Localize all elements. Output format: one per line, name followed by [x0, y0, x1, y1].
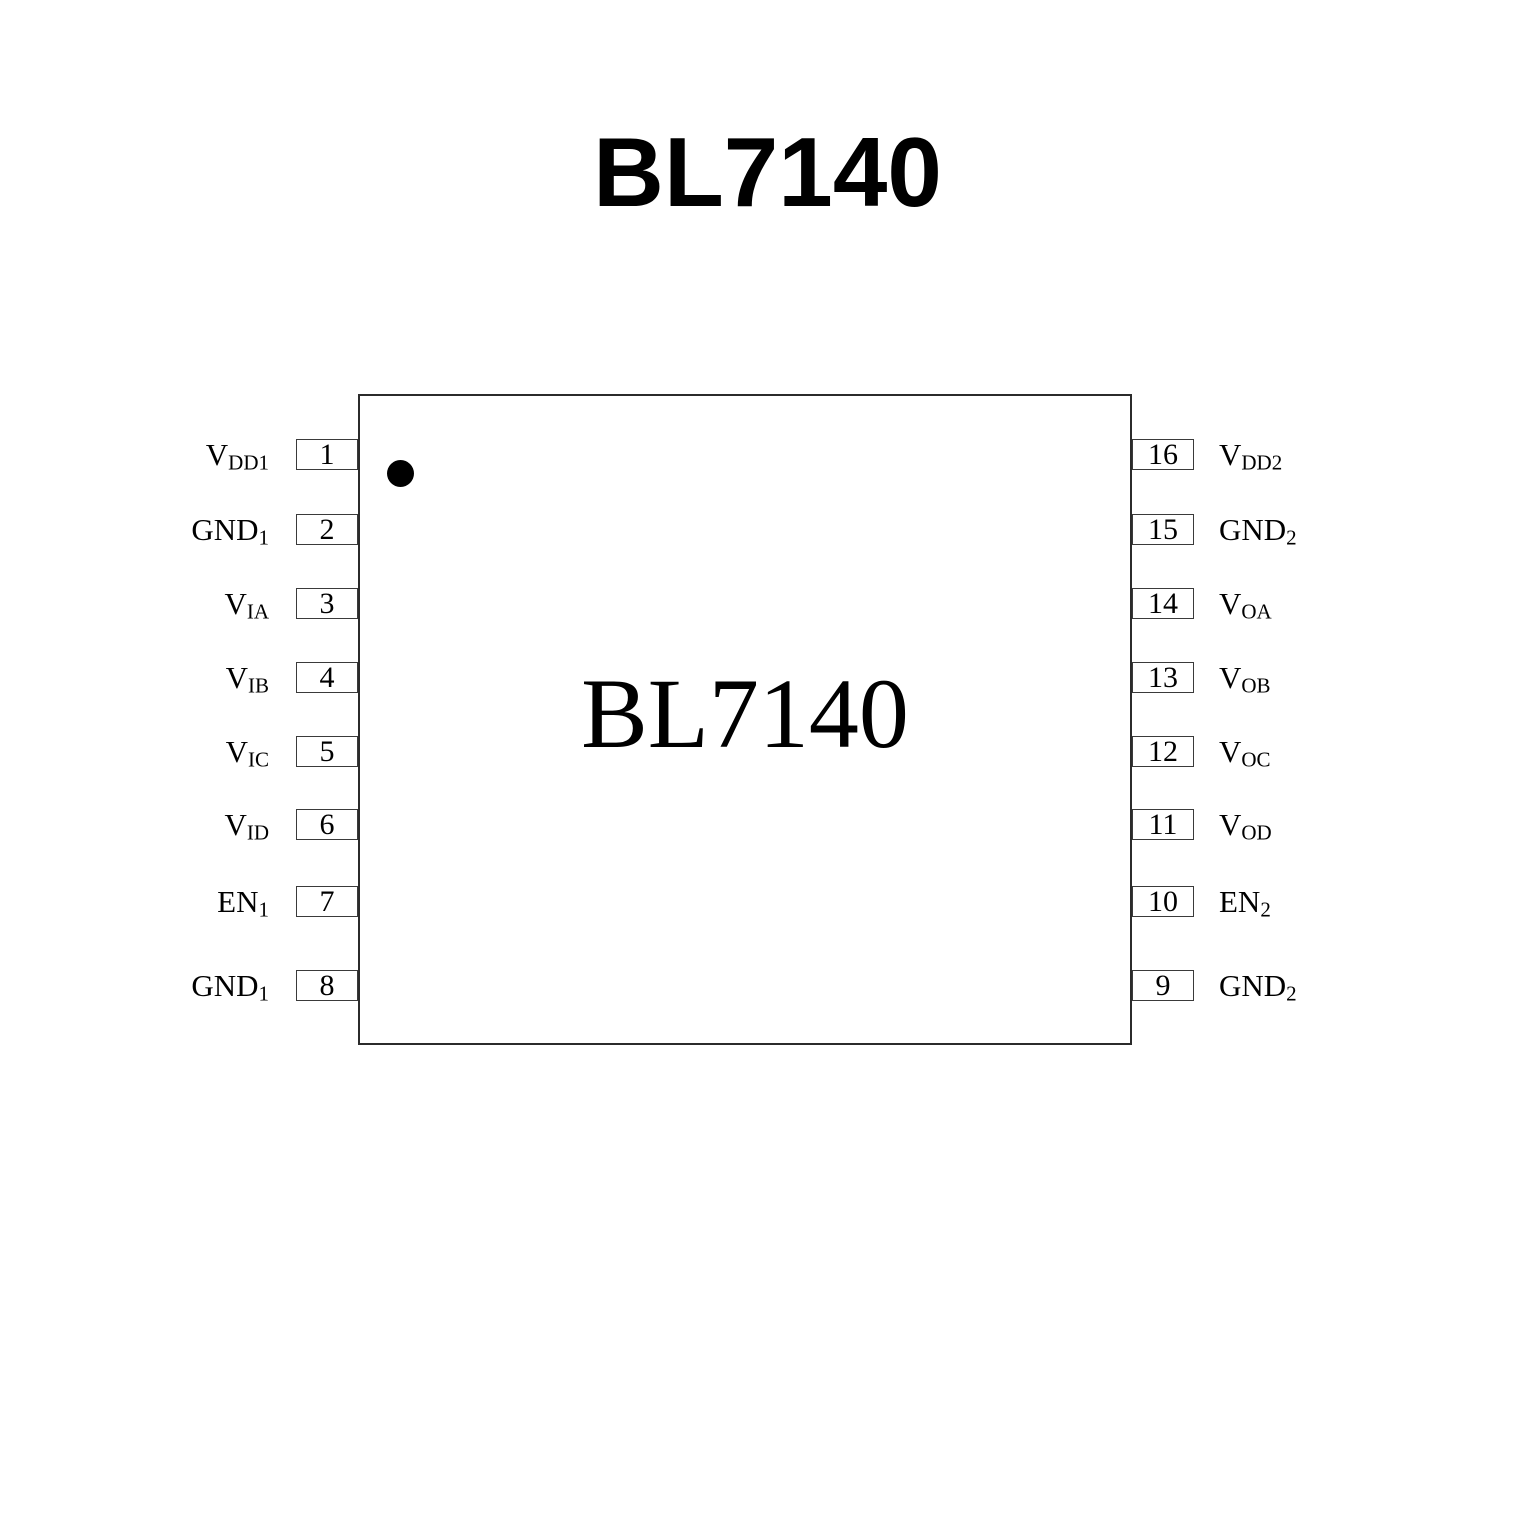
pin-label-voc: VOC — [1194, 736, 1472, 767]
pin-name-subscript: 1 — [259, 526, 270, 550]
pin-number: 7 — [320, 888, 335, 916]
pin-name: V — [1219, 437, 1241, 472]
pin-name-subscript: 2 — [1286, 526, 1297, 550]
pin-name: GND — [1219, 512, 1286, 547]
pin-row-15: 15 GND2 — [1132, 514, 1472, 545]
pin-label-en2: EN2 — [1194, 886, 1472, 917]
pin-name: V — [1219, 734, 1241, 769]
pin-row-16: 16 VDD2 — [1132, 439, 1472, 470]
ic-part-number: BL7140 — [360, 664, 1130, 764]
pin-number: 5 — [320, 738, 335, 766]
pin-name: V — [224, 807, 246, 842]
pin-number: 3 — [320, 590, 335, 618]
pin-number-box-13: 13 — [1132, 662, 1194, 693]
pin-name-subscript: ID — [247, 821, 269, 845]
pin-number-box-15: 15 — [1132, 514, 1194, 545]
pin-label-en1: EN1 — [40, 886, 296, 917]
ic-body-outline: BL7140 — [358, 394, 1132, 1045]
pin-number-box-6: 6 — [296, 809, 358, 840]
pin-name: V — [206, 437, 228, 472]
pin-number-box-5: 5 — [296, 736, 358, 767]
pin-row-10: 10 EN2 — [1132, 886, 1472, 917]
pin-row-3: VIA 3 — [40, 588, 358, 619]
pin-number-box-9: 9 — [1132, 970, 1194, 1001]
pin-name-subscript: OB — [1241, 674, 1270, 698]
pin-name-subscript: OC — [1241, 748, 1270, 772]
pin-name-subscript: DD1 — [228, 451, 269, 475]
pin-row-2: GND1 2 — [40, 514, 358, 545]
pin-name: V — [226, 734, 248, 769]
pin-name: V — [1219, 586, 1241, 621]
pin-name-subscript: 2 — [1260, 898, 1271, 922]
pin-number-box-11: 11 — [1132, 809, 1194, 840]
pin1-indicator-dot-icon — [387, 460, 414, 487]
pin-label-gnd1: GND1 — [40, 514, 296, 545]
pin-row-7: EN1 7 — [40, 886, 358, 917]
page-title: BL7140 — [0, 123, 1535, 221]
pin-number-box-2: 2 — [296, 514, 358, 545]
pin-row-5: VIC 5 — [40, 736, 358, 767]
pin-row-1: VDD1 1 — [40, 439, 358, 470]
pin-number: 6 — [320, 811, 335, 839]
pin-row-13: 13 VOB — [1132, 662, 1472, 693]
pin-name-subscript: IA — [247, 600, 269, 624]
pin-number: 8 — [320, 972, 335, 1000]
pin-name: GND — [191, 968, 258, 1003]
pin-name-subscript: OD — [1241, 821, 1271, 845]
pin-label-vic: VIC — [40, 736, 296, 767]
pin-name-subscript: OA — [1241, 600, 1271, 624]
pin-label-via: VIA — [40, 588, 296, 619]
pin-number: 11 — [1149, 811, 1178, 839]
pin-number: 16 — [1148, 441, 1178, 469]
pin-number-box-4: 4 — [296, 662, 358, 693]
pin-label-vid: VID — [40, 809, 296, 840]
pin-row-14: 14 VOA — [1132, 588, 1472, 619]
pin-name-subscript: IC — [248, 748, 269, 772]
pin-number: 15 — [1148, 516, 1178, 544]
pin-row-9: 9 GND2 — [1132, 970, 1472, 1001]
pin-label-vod: VOD — [1194, 809, 1472, 840]
pin-number-box-1: 1 — [296, 439, 358, 470]
pin-number: 2 — [320, 516, 335, 544]
pin-row-4: VIB 4 — [40, 662, 358, 693]
pin-name-subscript: 1 — [259, 982, 270, 1006]
pin-name-subscript: 2 — [1286, 982, 1297, 1006]
pin-number: 13 — [1148, 664, 1178, 692]
pin-name: V — [226, 660, 248, 695]
pin-number-box-3: 3 — [296, 588, 358, 619]
pin-number: 14 — [1148, 590, 1178, 618]
pin-number-box-16: 16 — [1132, 439, 1194, 470]
pin-name: V — [224, 586, 246, 621]
pin-number-box-7: 7 — [296, 886, 358, 917]
datasheet-page: BL7140 BL7140 VDD1 1 GND1 2 VIA 3 VIB 4 … — [0, 0, 1535, 1535]
pin-name-subscript: 1 — [259, 898, 270, 922]
pin-number: 12 — [1148, 738, 1178, 766]
pin-name-subscript: IB — [248, 674, 269, 698]
pin-name: V — [1219, 660, 1241, 695]
pin-row-8: GND1 8 — [40, 970, 358, 1001]
pin-row-11: 11 VOD — [1132, 809, 1472, 840]
pin-label-gnd2b: GND2 — [1194, 970, 1472, 1001]
pin-number: 4 — [320, 664, 335, 692]
pin-label-vob: VOB — [1194, 662, 1472, 693]
pin-name-subscript: DD2 — [1241, 451, 1282, 475]
pin-row-12: 12 VOC — [1132, 736, 1472, 767]
pin-name: EN — [1219, 884, 1260, 919]
pin-number: 9 — [1156, 972, 1171, 1000]
pin-name: EN — [217, 884, 258, 919]
pin-label-gnd2: GND2 — [1194, 514, 1472, 545]
pin-number: 1 — [320, 441, 335, 469]
pin-name: V — [1219, 807, 1241, 842]
pin-name: GND — [1219, 968, 1286, 1003]
pin-label-gnd1b: GND1 — [40, 970, 296, 1001]
pin-label-vdd2: VDD2 — [1194, 439, 1472, 470]
pin-number-box-14: 14 — [1132, 588, 1194, 619]
pin-number: 10 — [1148, 888, 1178, 916]
pin-label-vdd1: VDD1 — [40, 439, 296, 470]
pin-number-box-12: 12 — [1132, 736, 1194, 767]
pin-name: GND — [191, 512, 258, 547]
pin-label-vib: VIB — [40, 662, 296, 693]
pin-number-box-10: 10 — [1132, 886, 1194, 917]
pin-label-voa: VOA — [1194, 588, 1472, 619]
pin-number-box-8: 8 — [296, 970, 358, 1001]
pin-row-6: VID 6 — [40, 809, 358, 840]
